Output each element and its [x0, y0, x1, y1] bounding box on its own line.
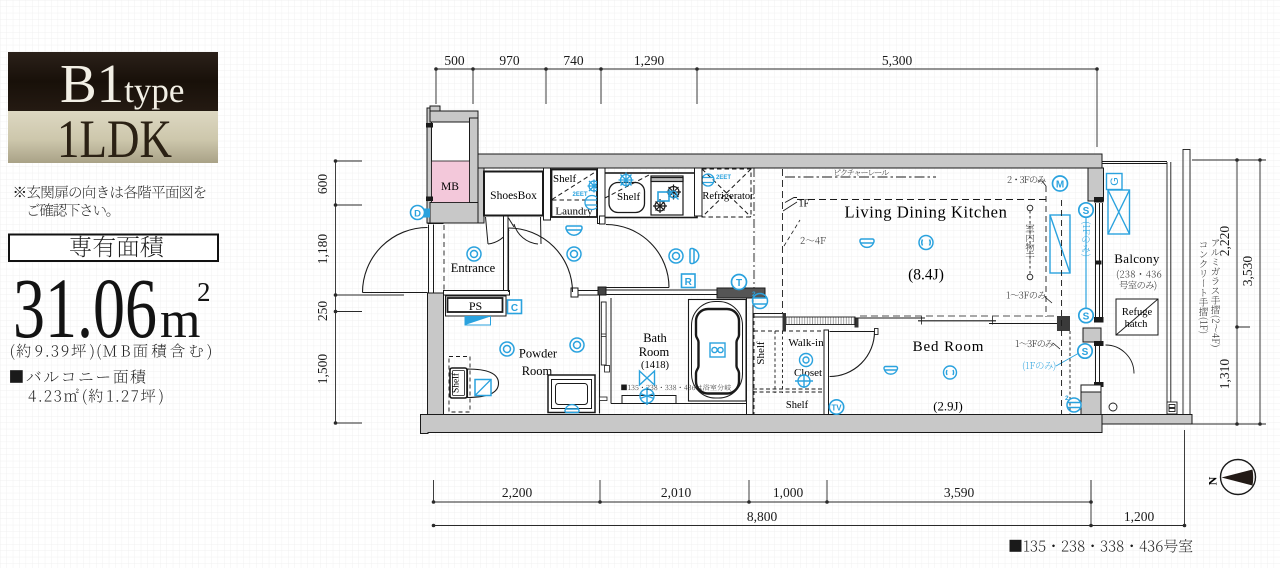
svg-text:2: 2: [752, 291, 756, 298]
svg-text:Shelf: Shelf: [786, 400, 809, 411]
svg-text:MB: MB: [441, 181, 459, 193]
svg-text:(2.9J): (2.9J): [933, 400, 963, 414]
svg-text:Living Dining Kitchen: Living Dining Kitchen: [845, 203, 1008, 222]
svg-text:R: R: [685, 277, 693, 288]
svg-text:PS: PS: [469, 299, 482, 313]
svg-text:M: M: [1056, 180, 1064, 191]
svg-text:2: 2: [1065, 395, 1069, 402]
svg-text:1,310: 1,310: [1217, 359, 1232, 390]
svg-text:Bed Room: Bed Room: [913, 339, 985, 355]
svg-text:2EET: 2EET: [573, 192, 588, 198]
svg-text:1LDK: 1LDK: [57, 109, 172, 169]
svg-text:C: C: [511, 303, 518, 314]
svg-text:Entrance: Entrance: [451, 261, 496, 275]
svg-text:Shelf: Shelf: [617, 191, 641, 203]
svg-text:31.06: 31.06: [13, 260, 157, 356]
svg-text:2EET: 2EET: [716, 175, 731, 181]
svg-text:Powder: Powder: [519, 347, 558, 361]
svg-text:ShoesBox: ShoesBox: [490, 190, 537, 202]
svg-text:S: S: [1083, 312, 1090, 323]
svg-text:2: 2: [197, 277, 211, 307]
svg-text:TV: TV: [831, 404, 842, 413]
svg-text:740: 740: [563, 53, 584, 68]
svg-text:(8.4J): (8.4J): [908, 267, 944, 284]
svg-text:2,010: 2,010: [661, 485, 692, 500]
svg-text:Shelf: Shelf: [755, 341, 767, 365]
svg-text:1,500: 1,500: [315, 354, 330, 385]
svg-text:Bath: Bath: [643, 331, 667, 345]
svg-text:D: D: [414, 209, 421, 220]
svg-text:5,300: 5,300: [882, 53, 913, 68]
svg-text:Room: Room: [639, 345, 670, 359]
svg-text:1,000: 1,000: [773, 485, 804, 500]
svg-text:8,800: 8,800: [747, 509, 778, 524]
svg-text:2,220: 2,220: [1217, 226, 1232, 257]
svg-text:250: 250: [315, 301, 330, 322]
svg-text:1,290: 1,290: [634, 53, 665, 68]
svg-text:3,530: 3,530: [1240, 256, 1255, 287]
svg-text:3,590: 3,590: [944, 485, 975, 500]
svg-text:m: m: [160, 292, 200, 349]
svg-text:Balcony: Balcony: [1114, 251, 1160, 266]
svg-text:Refuge: Refuge: [1122, 307, 1153, 318]
svg-text:(1418): (1418): [641, 360, 669, 371]
svg-text:500: 500: [444, 53, 465, 68]
svg-text:hatch: hatch: [1125, 319, 1148, 330]
svg-text:600: 600: [315, 174, 330, 195]
svg-text:N: N: [1206, 476, 1220, 485]
svg-text:T: T: [736, 278, 742, 289]
svg-text:Refrigerator: Refrigerator: [702, 191, 754, 202]
svg-text:970: 970: [499, 53, 520, 68]
svg-text:1,200: 1,200: [1124, 509, 1155, 524]
svg-text:S: S: [1082, 347, 1089, 358]
svg-text:Shelf: Shelf: [451, 372, 462, 393]
svg-text:S: S: [1083, 206, 1090, 217]
svg-text:Walk-in: Walk-in: [788, 337, 824, 349]
svg-text:G: G: [1109, 177, 1121, 186]
svg-text:Shelf: Shelf: [553, 173, 577, 185]
svg-text:1,180: 1,180: [315, 234, 330, 265]
svg-text:2,200: 2,200: [502, 485, 533, 500]
svg-text:1F: 1F: [799, 199, 810, 210]
